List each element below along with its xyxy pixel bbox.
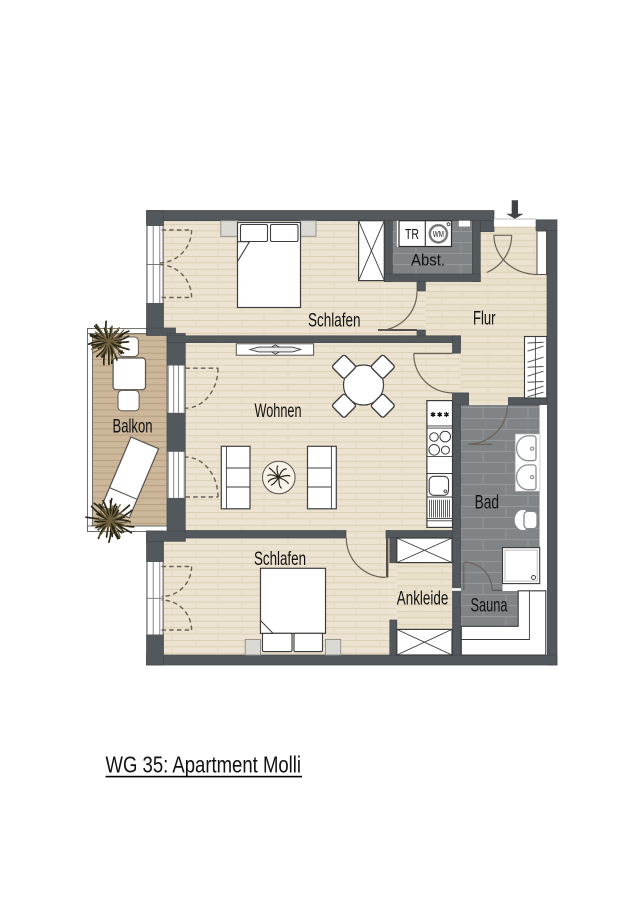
svg-text:TR: TR — [405, 226, 419, 243]
svg-text:Bad: Bad — [475, 492, 500, 514]
svg-text:WG 35: Apartment Molli: WG 35: Apartment Molli — [106, 751, 302, 777]
svg-text:Schlafen: Schlafen — [308, 309, 361, 331]
svg-text:Flur: Flur — [473, 307, 496, 329]
svg-text:Schlafen: Schlafen — [254, 548, 306, 570]
svg-text:Ankleide: Ankleide — [397, 588, 449, 610]
svg-text:Wohnen: Wohnen — [255, 400, 302, 422]
svg-text:WM: WM — [433, 230, 444, 239]
svg-text:Balkon: Balkon — [113, 415, 153, 437]
svg-text:Sauna: Sauna — [471, 595, 508, 617]
svg-text:Abst.: Abst. — [411, 252, 445, 270]
